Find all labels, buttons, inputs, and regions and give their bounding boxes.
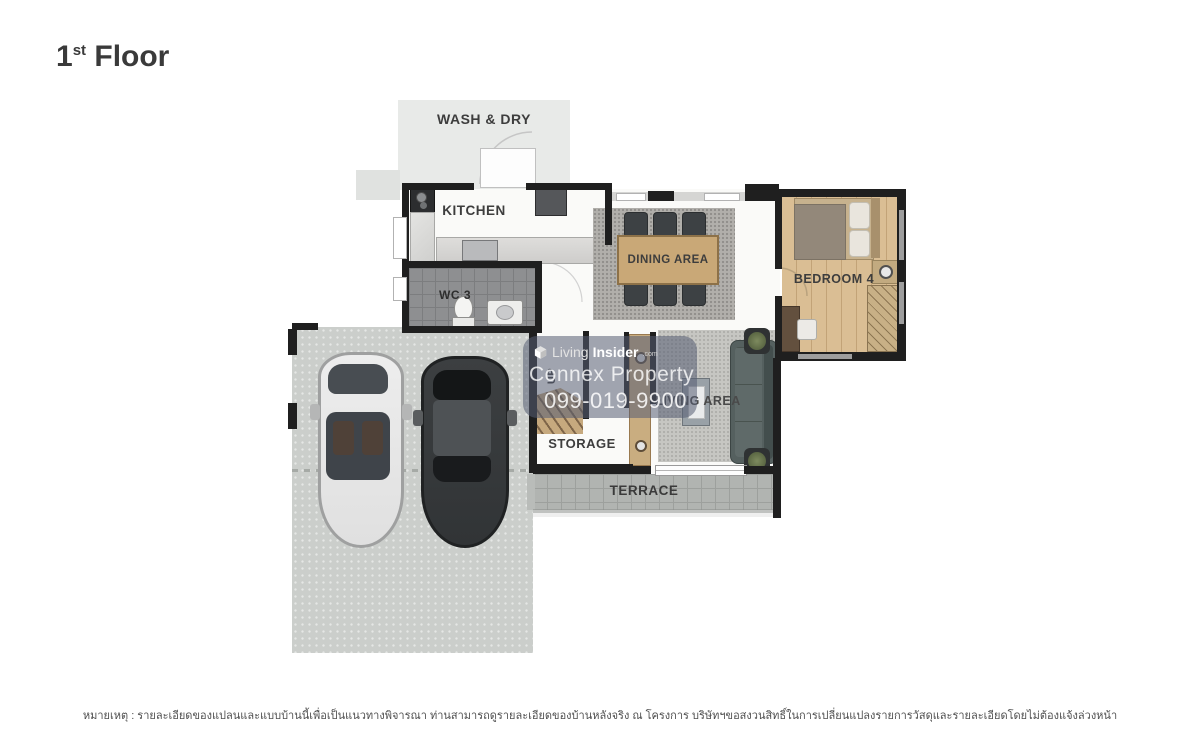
car-seat	[333, 421, 354, 455]
plant-leaves	[748, 332, 766, 350]
sliding-door	[655, 465, 747, 476]
wall-segment	[745, 184, 779, 201]
bed-headboard	[871, 198, 880, 258]
burner-icon	[420, 202, 427, 209]
window-segment	[899, 210, 904, 260]
terrace-shadow-fade	[533, 513, 781, 517]
black-car-roof	[433, 400, 491, 456]
white-car	[318, 352, 404, 548]
window-sill	[616, 193, 646, 201]
storage-label: STORAGE	[534, 436, 630, 451]
window-sill	[393, 217, 407, 259]
carport-terrace-strip	[527, 474, 535, 510]
terrace-label: TERRACE	[558, 483, 730, 498]
wall-segment	[526, 183, 612, 190]
page-title: 1st Floor	[56, 40, 169, 74]
window-sill	[393, 277, 407, 301]
wardrobe	[867, 285, 899, 352]
wall-segment	[777, 189, 903, 197]
wall-segment	[648, 191, 674, 201]
black-car	[421, 356, 509, 548]
wall-stub	[288, 403, 297, 429]
kitchen-closet	[535, 188, 567, 216]
wash-dry-label: WASH & DRY	[398, 111, 570, 127]
dining-table: DINING AREA	[617, 235, 719, 285]
dining-label: DINING AREA	[627, 254, 708, 266]
cabinet-knob-icon	[635, 440, 647, 452]
watermark-overlay: LivingInsider.com Connex Property 099-01…	[523, 336, 697, 418]
white-car-cabin	[326, 412, 390, 480]
side-mirror	[310, 404, 320, 420]
brand-domain: .com	[643, 351, 658, 360]
window-segment	[899, 282, 904, 324]
wall-stub	[292, 323, 318, 330]
livinginsider-logo-icon	[533, 345, 548, 360]
bed-pillow	[849, 202, 870, 229]
wc-sink-basin	[496, 305, 514, 320]
black-car-windshield	[433, 456, 491, 482]
wall-stub	[288, 329, 297, 355]
wc-sink	[487, 300, 523, 325]
wall-segment	[402, 183, 474, 190]
desk-chair	[797, 319, 817, 340]
footnote-text: หมายเหตุ : รายละเอียดของแปลนและแบบบ้านนี…	[0, 706, 1200, 724]
car-seat	[362, 421, 383, 455]
plant-icon	[744, 328, 770, 354]
window-sill	[704, 193, 740, 201]
floorplan-page: { "title": { "number": "1", "ordinal": "…	[0, 0, 1200, 750]
watermark-brand-row: LivingInsider.com	[533, 344, 658, 360]
wash-dry-door-leaf	[480, 148, 536, 188]
window-segment	[798, 354, 852, 359]
wall-segment	[535, 261, 542, 333]
brand-first: Living	[552, 344, 589, 360]
wall-segment	[775, 296, 782, 358]
wall-segment	[744, 466, 775, 474]
bedroom4-label: BEDROOM 4	[786, 272, 882, 286]
side-mirror	[413, 410, 423, 426]
title-number: 1	[56, 40, 73, 73]
title-word: Floor	[94, 40, 169, 73]
bed-pillow	[849, 230, 870, 257]
sliding-door-rail	[656, 470, 746, 471]
wall-segment	[773, 358, 781, 518]
kitchen-sink	[462, 240, 498, 261]
watermark-phone: 099-019-9900	[544, 388, 687, 414]
black-car-rear-window	[433, 370, 491, 400]
sofa-backrest	[764, 345, 773, 459]
title-ordinal: st	[73, 42, 86, 59]
wc3-label: WC 3	[425, 288, 485, 302]
bed-blanket	[794, 204, 846, 260]
wall-segment	[605, 183, 612, 245]
wall-segment	[775, 189, 782, 269]
wall-segment	[402, 326, 542, 333]
kitchen-label: KITCHEN	[428, 203, 520, 218]
watermark-company: Connex Property	[529, 363, 694, 387]
kitchen-counter-left	[410, 212, 435, 264]
wall-segment	[402, 261, 542, 268]
side-mirror	[402, 404, 412, 420]
wall-segment	[533, 466, 651, 474]
side-mirror	[507, 410, 517, 426]
wash-dry-annex	[356, 170, 400, 200]
white-car-rear-window	[328, 364, 388, 394]
brand-second: Insider	[593, 344, 639, 360]
